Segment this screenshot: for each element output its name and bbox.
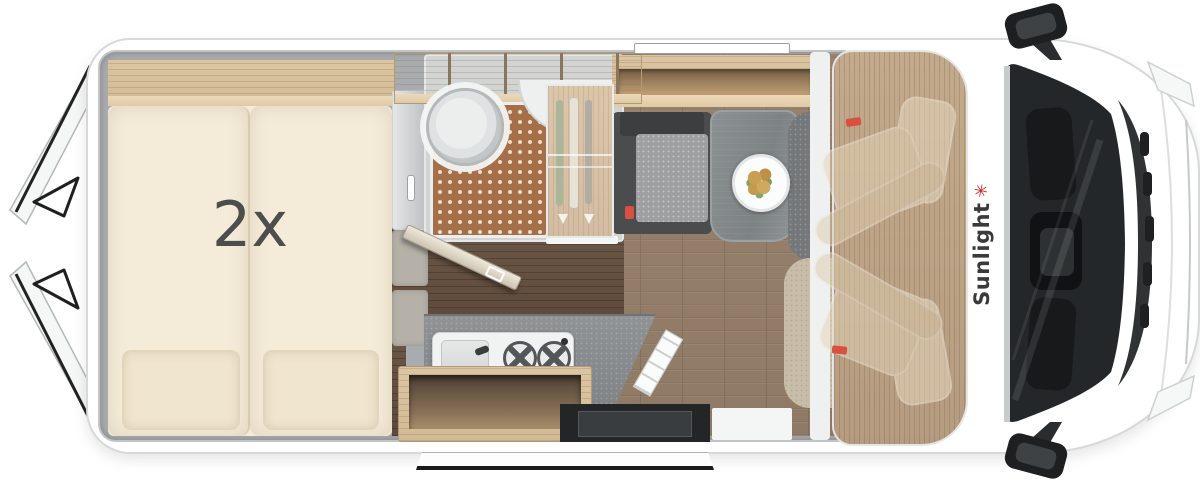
dinette-shelf-opening [618,69,812,95]
bed-shelf-front-edge [108,96,394,106]
rear-door-top-icon [10,60,96,224]
bathroom-door-handle [407,175,415,201]
wardrobe-hook-right [584,214,594,224]
entry-step-rail [416,452,714,470]
seatbelt-tag-driver [832,345,848,355]
ghost-seat-passenger [824,92,956,232]
corridor-cushion-lower [392,290,428,346]
palm-tree-icon: ✳ [971,182,994,200]
wardrobe [546,84,614,238]
camper-floorplan: 2x [0,0,1200,482]
entry-step [578,411,692,437]
wardrobe-hook-left [558,214,568,224]
bench-seat [612,112,712,234]
seatbelt-buckle [625,206,634,219]
pillow-left [122,350,240,430]
bench-cushion [636,134,708,222]
entry-step-well [560,404,710,442]
rear-door-bottom-icon [10,262,96,426]
food-plate [732,154,790,212]
ghost-seat-driver [822,252,956,408]
kitchen-shelf-opening [409,375,581,429]
entry-threshold [712,408,792,440]
bed-capacity-label: 2x [170,194,330,256]
sliding-door-window [634,43,790,54]
brand-logo: Sunlight ✳ [970,175,994,315]
cooktop-knob [561,338,568,345]
toilet [426,88,504,166]
brand-text: Sunlight [970,202,994,305]
bed-overhead-shelf [108,60,394,106]
double-bed: 2x [108,106,392,436]
pillow-right [263,350,379,430]
bench-headrest [620,112,704,136]
